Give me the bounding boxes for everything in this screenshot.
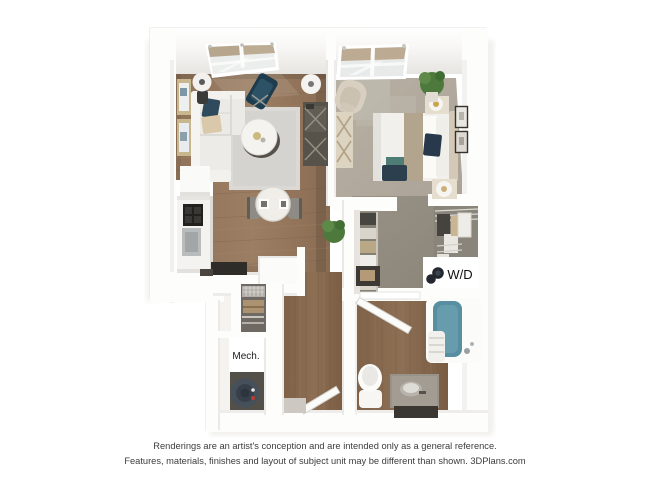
svg-text:W/D: W/D [447, 267, 472, 282]
svg-text:Features, materials, finishes: Features, materials, finishes and layout… [124, 456, 526, 466]
svg-text:Mech.: Mech. [232, 351, 259, 362]
svg-text:Renderings are an artist's con: Renderings are an artist's conception an… [153, 441, 496, 451]
